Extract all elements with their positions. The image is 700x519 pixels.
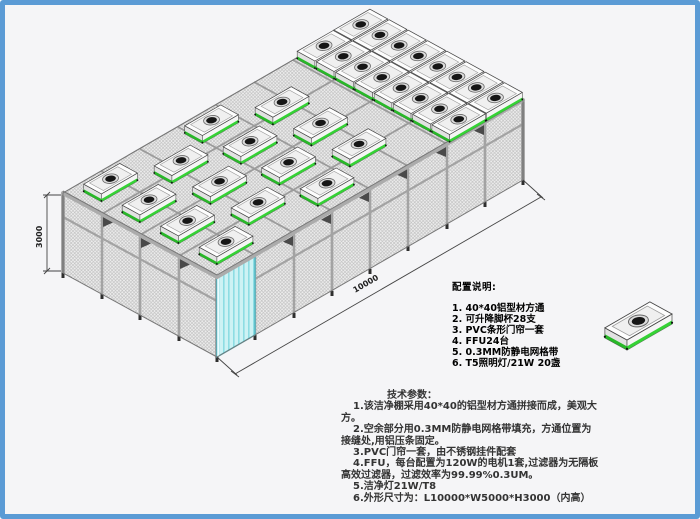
config-item: 6. T5照明灯/21W 20盏 <box>452 358 602 369</box>
config-item: 1. 40*40铝型材方通 <box>452 303 602 314</box>
tech-params-line: 5.洁净灯21W/T8 <box>353 481 697 492</box>
tech-params-line: 3.PVC门帘一套，由不锈钢挂件配套 <box>353 447 697 458</box>
config-notes: 配置说明: 1. 40*40铝型材方通 2. 可升降脚杯28支 3. PVC条形… <box>452 279 602 369</box>
ffu-detail-drawing <box>604 302 673 350</box>
drawing-canvas: 3000 10000 配置说明: 1. 40*40铝型材方通 2. 可升降脚杯2… <box>0 0 700 519</box>
tech-params-line: 6.外形尺寸为：L10000*W5000*H3000（内高） <box>353 493 697 504</box>
config-item: 3. PVC条形门帘一套 <box>452 325 602 336</box>
tech-params-line: 1.该洁净棚采用40*40的铝型材方通拼接而成，美观大 <box>353 401 697 412</box>
tech-params-line: 方。 <box>341 413 697 424</box>
tech-params-line: 高效过滤器，过滤效率为99.99%0.3UM。 <box>341 470 697 481</box>
tech-params-line: 4.FFU，每台配置为120W的电机1套,过滤器为无隔板 <box>353 458 697 469</box>
tech-params-line: 接缝处,用铝压条固定。 <box>341 436 697 447</box>
tech-params-line: 2.空余部分用0.3MM防静电网格带填充，方通位置为 <box>353 424 697 435</box>
tech-params: 技术参数： 1.该洁净棚采用40*40的铝型材方通拼接而成，美观大 方。 2.空… <box>341 390 697 504</box>
config-item: 4. FFU24台 <box>452 336 602 347</box>
tech-params-title: 技术参数： <box>387 390 697 401</box>
height-dimension-label: 3000 <box>35 225 44 248</box>
config-notes-title: 配置说明: <box>452 279 602 293</box>
config-item: 5. 0.3MM防静电网格带 <box>452 347 602 358</box>
config-item: 2. 可升降脚杯28支 <box>452 314 602 325</box>
height-dimension: 3000 <box>35 192 61 274</box>
